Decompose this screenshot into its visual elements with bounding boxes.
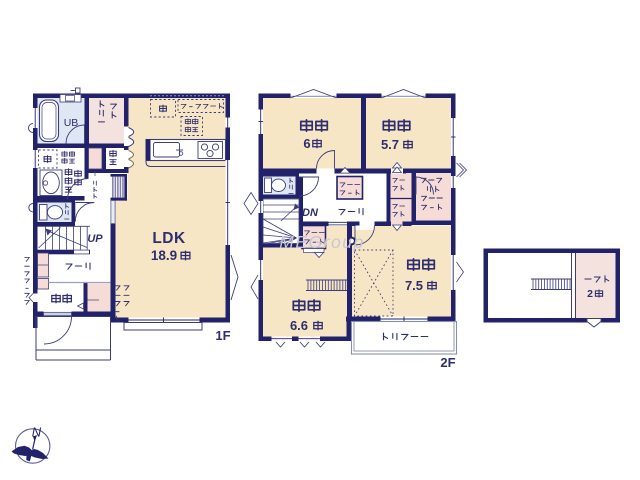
svg-text:1F: 1F bbox=[215, 328, 230, 343]
svg-text:DN: DN bbox=[302, 207, 319, 219]
svg-text:6.6: 6.6 bbox=[290, 318, 308, 333]
svg-text:18.9: 18.9 bbox=[151, 248, 177, 263]
svg-text:UP: UP bbox=[87, 233, 103, 245]
svg-text:MEGroup: MEGroup bbox=[279, 232, 364, 252]
svg-text:7.5: 7.5 bbox=[405, 278, 423, 293]
svg-text:5.7: 5.7 bbox=[381, 137, 399, 152]
svg-text:2: 2 bbox=[587, 288, 593, 300]
svg-text:LDK: LDK bbox=[152, 230, 186, 247]
svg-text:6: 6 bbox=[303, 136, 310, 151]
svg-text:2F: 2F bbox=[440, 355, 455, 370]
